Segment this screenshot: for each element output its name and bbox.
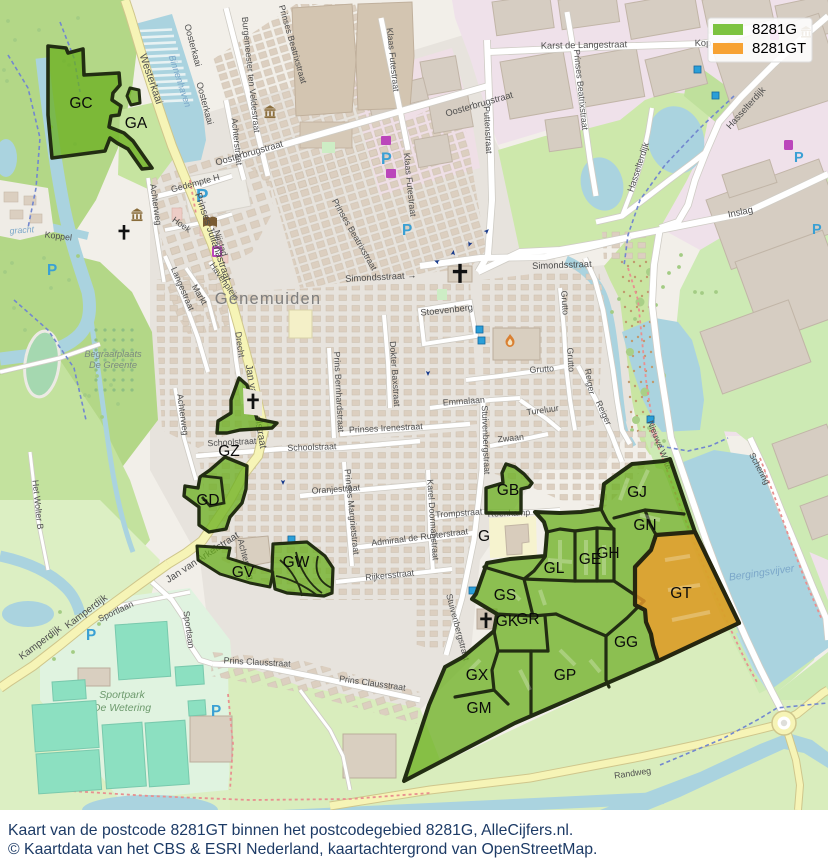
svg-text:GH: GH bbox=[596, 545, 619, 562]
svg-text:P: P bbox=[211, 703, 221, 720]
svg-text:GX: GX bbox=[466, 667, 489, 684]
svg-text:GL: GL bbox=[544, 560, 565, 577]
svg-text:P: P bbox=[86, 627, 96, 644]
svg-text:GP: GP bbox=[554, 667, 576, 684]
svg-text:P: P bbox=[381, 150, 392, 168]
svg-text:GR: GR bbox=[516, 611, 539, 628]
svg-text:Sportpark: Sportpark bbox=[99, 689, 145, 701]
svg-text:Grutto: Grutto bbox=[529, 363, 554, 375]
svg-text:8281GT: 8281GT bbox=[752, 40, 806, 57]
svg-text:De Greente: De Greente bbox=[89, 360, 137, 370]
svg-text:G: G bbox=[478, 528, 490, 545]
svg-text:GB: GB bbox=[497, 482, 519, 499]
svg-text:P: P bbox=[794, 150, 804, 166]
svg-text:GN: GN bbox=[633, 517, 656, 534]
svg-text:Simondsstraat: Simondsstraat bbox=[532, 259, 592, 271]
svg-text:GM: GM bbox=[467, 700, 492, 717]
svg-text:8281G: 8281G bbox=[752, 21, 797, 38]
svg-text:GA: GA bbox=[125, 115, 148, 132]
svg-text:GV: GV bbox=[232, 564, 255, 581]
svg-text:De Wetering: De Wetering bbox=[93, 702, 151, 714]
svg-text:GJ: GJ bbox=[627, 484, 647, 501]
svg-text:Karst de Langestraat: Karst de Langestraat bbox=[541, 39, 628, 51]
svg-text:GZ: GZ bbox=[218, 443, 240, 460]
svg-text:gracht: gracht bbox=[9, 224, 35, 236]
svg-text:P: P bbox=[402, 222, 412, 239]
svg-text:Schoolstraat: Schoolstraat bbox=[287, 441, 337, 453]
svg-text:P: P bbox=[812, 222, 822, 238]
svg-text:GD: GD bbox=[196, 492, 219, 509]
svg-text:GW: GW bbox=[283, 554, 310, 571]
svg-text:P: P bbox=[47, 262, 57, 279]
svg-text:Genemuiden: Genemuiden bbox=[215, 290, 321, 308]
svg-text:GC: GC bbox=[69, 95, 92, 112]
svg-text:Grutto: Grutto bbox=[559, 290, 571, 315]
svg-text:GG: GG bbox=[614, 634, 638, 651]
svg-text:Grutto: Grutto bbox=[565, 347, 577, 372]
svg-text:Begraafplaats: Begraafplaats bbox=[84, 349, 142, 359]
svg-text:GS: GS bbox=[494, 587, 516, 604]
svg-text:GT: GT bbox=[670, 585, 692, 602]
